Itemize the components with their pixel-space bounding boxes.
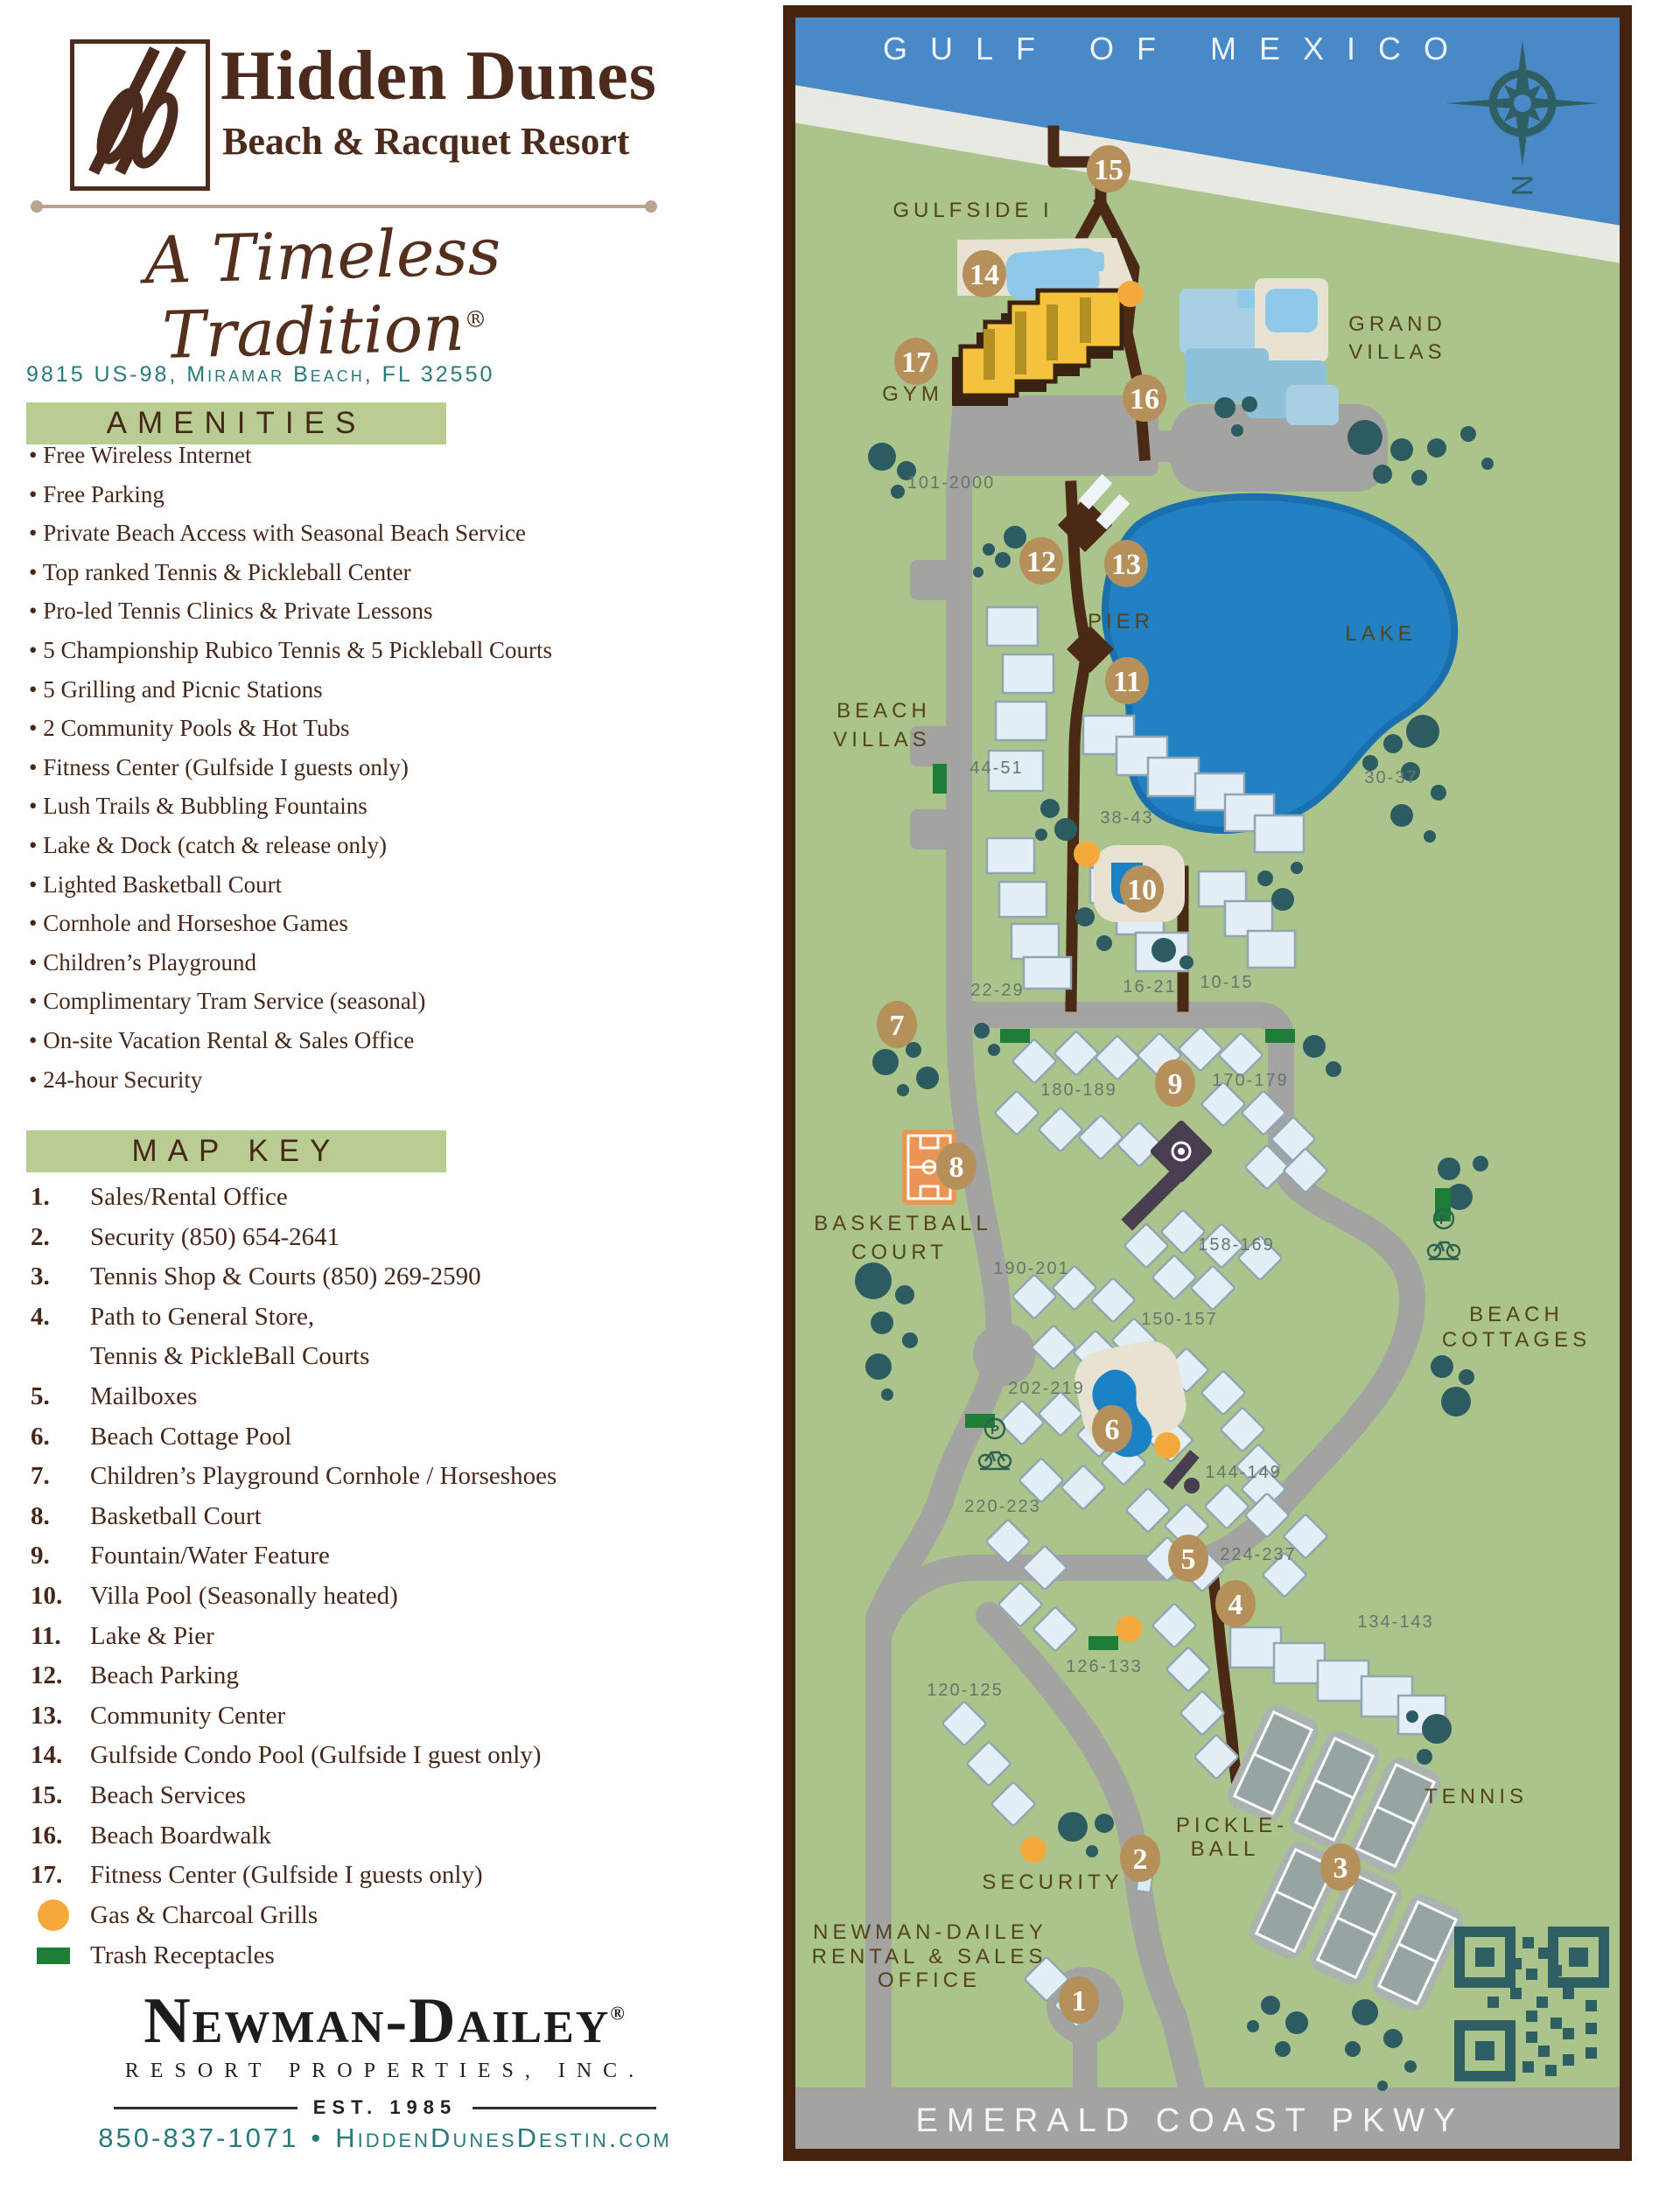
map-label-gulf-of-mexico: GULF OF MEXICO [883,31,1471,66]
amenity-item: Fitness Center (Gulfside I guests only) [29,748,552,787]
map-label-grand-villas-line2: VILLAS [1348,340,1445,364]
map-key-banner: MAP KEY [26,1130,446,1172]
est-text: EST. 1985 [313,2096,458,2119]
key-label: Mailboxes [90,1382,197,1410]
key-label: Beach Parking [90,1661,239,1689]
map-key-item-4-line2: Tennis & PickleBall Courts [31,1337,556,1377]
key-label: Basketball Court [90,1502,262,1530]
map-label-pickleball-line1: PICKLE- [1176,1814,1288,1837]
map-label-pickleball-line2: BALL [1191,1837,1260,1861]
map-key-item-4: 4.Path to General Store, [31,1297,556,1338]
map-label-range-158-169: 158-169 [1198,1235,1274,1255]
key-number: 5. [31,1377,90,1417]
legend-label: Trash Receptacles [90,1941,275,1970]
svg-text:17: 17 [901,346,931,379]
gulfside-hot-tub [1083,252,1104,271]
map-label-range-30-37: 30-37 [1364,768,1417,787]
trash-icon [37,1948,70,1964]
map-key-list: 1.Sales/Rental Office 2.Security (850) 6… [31,1178,556,1976]
key-label: Community Center [90,1702,285,1730]
map-label-range-10-15: 10-15 [1200,973,1253,992]
map-label-tennis: TENNIS [1424,1785,1528,1808]
key-label: Path to General Store, [90,1303,314,1331]
monogram-svg [74,44,197,178]
svg-text:7: 7 [890,1010,905,1042]
svg-text:10: 10 [1127,874,1157,906]
amenity-item: 24-hour Security [29,1060,552,1100]
map-label-range-224-237: 224-237 [1220,1545,1296,1564]
key-number: 2. [31,1218,90,1258]
established-line: EST. 1985 [114,2096,656,2119]
map-key-item-12: 12.Beach Parking [31,1656,556,1696]
svg-text:14: 14 [969,259,999,291]
map-key-item-10: 10.Villa Pool (Seasonally heated) [31,1577,556,1617]
amenity-item: 5 Grilling and Picnic Stations [29,670,552,710]
map-label-range-44-51: 44-51 [969,759,1023,778]
map-marker-9: 9 [1155,1060,1195,1107]
amenity-item: On-site Vacation Rental & Sales Office [29,1021,552,1060]
map-marker-8: 8 [936,1143,976,1190]
map-key-item-17: 17.Fitness Center (Gulfside I guests onl… [31,1856,556,1896]
map-key-item-1: 1.Sales/Rental Office [31,1178,556,1218]
key-label: Beach Services [90,1781,246,1809]
map-marker-13: 13 [1104,540,1148,587]
legend-label: Gas & Charcoal Grills [90,1901,318,1930]
grill-icon [1074,841,1100,867]
grill-icon [1020,1836,1046,1863]
svg-text:15: 15 [1094,154,1123,186]
trash-icon [933,764,947,794]
svg-text:3: 3 [1333,1852,1348,1885]
map-key-item-15: 15.Beach Services [31,1776,556,1816]
map-marker-14: 14 [962,250,1006,297]
key-label: Beach Cottage Pool [90,1423,291,1451]
key-number: 16. [31,1816,90,1857]
newman-dailey-logo: Newman-Dailey® [52,1984,717,2059]
amenity-item: Lush Trails & Bubbling Fountains [29,787,552,826]
map-label-basketball-line1: BASKETBALL [814,1212,991,1235]
map-label-range-202-219: 202-219 [1008,1379,1084,1398]
map-marker-1: 1 [1059,1976,1099,2024]
key-label: Gulfside Condo Pool (Gulfside I guest on… [90,1741,542,1769]
svg-text:5: 5 [1181,1543,1196,1576]
map-marker-12: 12 [1019,537,1063,584]
map-marker-17: 17 [894,338,938,385]
company-name: Newman-Dailey [143,1985,610,2057]
key-number: 7. [31,1457,90,1497]
map-key-item-5: 5.Mailboxes [31,1377,556,1417]
legend-grills: Gas & Charcoal Grills [31,1896,556,1936]
amenity-item: Lighted Basketball Court [29,865,552,905]
amenity-item: Private Beach Access with Seasonal Beach… [29,514,552,553]
key-number: 9. [31,1536,90,1577]
key-number: 10. [31,1577,90,1617]
amenity-item: Children’s Playground [29,943,552,983]
key-number: 6. [31,1417,90,1458]
resort-map-flyer: Hidden Dunes Beach & Racquet Resort A Ti… [0,0,1680,2203]
map-label-beach-villas-line2: VILLAS [833,728,930,752]
map-marker-3: 3 [1320,1843,1361,1891]
divider-rule [37,205,651,208]
key-label: Fitness Center (Gulfside I guests only) [90,1861,483,1889]
map-label-range-180-189: 180-189 [1040,1081,1116,1100]
grill-icon [1116,1616,1142,1642]
map-label-range-101-2000: 101-2000 [907,473,996,493]
amenity-item: Free Wireless Internet [29,436,552,475]
svg-text:1: 1 [1072,1985,1087,2018]
amenity-item: Pro-led Tennis Clinics & Private Lessons [29,591,552,631]
contact-line: 850-837-1071•HiddenDunesDestin.com [9,2123,761,2154]
svg-text:4: 4 [1228,1589,1243,1621]
map-label-range-120-125: 120-125 [927,1681,1003,1700]
map-label-rental-office-line1: NEWMAN-DAILEY [813,1920,1047,1944]
map-key-item-13: 13.Community Center [31,1696,556,1737]
map-marker-2: 2 [1120,1835,1160,1882]
map-label-security: SECURITY [982,1871,1123,1894]
map-label-range-220-223: 220-223 [964,1497,1040,1516]
amenity-item: Free Parking [29,475,552,514]
key-number: 4. [31,1297,90,1338]
svg-text:8: 8 [949,1151,964,1184]
map-label-grand-villas-line1: GRAND [1348,312,1446,336]
map-marker-11: 11 [1105,657,1149,704]
tagline: A Timeless Tradition® [42,212,605,377]
map-label-pier: PIER [1088,610,1154,633]
key-number: 12. [31,1656,90,1696]
key-number: 11. [31,1617,90,1657]
compass-north-letter: N [1505,175,1538,197]
phone-number: 850-837-1071 [98,2123,298,2153]
website-url: HiddenDunesDestin.com [335,2123,671,2153]
svg-text:13: 13 [1111,549,1141,581]
map-label-beach-villas-line1: BEACH [836,699,931,723]
registered-mark: ® [464,306,487,333]
map-key-item-6: 6.Beach Cottage Pool [31,1417,556,1458]
trash-icon [1265,1029,1295,1043]
map-label-beach-cottages-line1: BEACH [1469,1303,1564,1326]
map-label-range-16-21: 16-21 [1123,977,1176,997]
map-label-range-38-43: 38-43 [1100,808,1153,828]
map-key-item-9: 9.Fountain/Water Feature [31,1536,556,1577]
map-marker-4: 4 [1215,1580,1256,1627]
map-label-range-134-143: 134-143 [1357,1612,1433,1632]
map-label-beach-cottages-line2: COTTAGES [1442,1328,1591,1352]
svg-text:11: 11 [1113,666,1141,698]
map-marker-15: 15 [1087,145,1130,192]
trash-icon [1000,1029,1030,1043]
map-label-rental-office-line2: RENTAL & SALES [812,1945,1047,1969]
key-label: Security (850) 654-2641 [90,1223,339,1251]
map-label-basketball-line2: COURT [851,1241,948,1264]
map-label-range-144-149: 144-149 [1205,1463,1281,1482]
separator-dot: • [311,2123,323,2153]
map-marker-16: 16 [1123,374,1166,422]
map-label-gym: GYM [882,382,943,406]
amenity-item: 5 Championship Rubico Tennis & 5 Pickleb… [29,631,552,670]
map-label-range-190-201: 190-201 [993,1259,1069,1278]
resort-address: 9815 US-98, Miramar Beach, FL 32550 [26,362,674,388]
map-key-title: MAP KEY [132,1134,341,1169]
map-label-range-22-29: 22-29 [970,981,1024,1000]
map-marker-6: 6 [1092,1405,1132,1452]
map-label-gulfside-i: GULFSIDE I [892,199,1053,222]
key-number: 3. [31,1257,90,1297]
company-subtitle: RESORT PROPERTIES, INC. [52,2060,717,2083]
map-key-item-3: 3.Tennis Shop & Courts (850) 269-2590 [31,1257,556,1297]
key-number: 8. [31,1497,90,1537]
brand-name: Hidden Dunes [220,37,657,116]
key-number: 13. [31,1696,90,1737]
key-label: Lake & Pier [90,1622,214,1650]
svg-text:9: 9 [1168,1068,1183,1101]
map-key-item-16: 16.Beach Boardwalk [31,1816,556,1857]
key-label: Beach Boardwalk [90,1822,271,1850]
brand-subtitle: Beach & Racquet Resort [222,119,630,164]
map-label-range-150-157: 150-157 [1141,1310,1217,1329]
map-key-item-8: 8.Basketball Court [31,1497,556,1537]
grill-icon [1117,281,1144,307]
amenity-item: Cornhole and Horseshoe Games [29,904,552,943]
key-label: Sales/Rental Office [90,1183,288,1211]
map-key-item-7: 7.Children’s Playground Cornhole / Horse… [31,1457,556,1497]
registered-mark: ® [610,2002,626,2024]
key-number: 17. [31,1856,90,1896]
key-label: Children’s Playground Cornhole / Horsesh… [90,1462,556,1490]
map-marker-5: 5 [1168,1535,1208,1582]
amenity-item: Lake & Dock (catch & release only) [29,826,552,865]
legend-trash: Trash Receptacles [31,1935,556,1976]
key-label: Tennis Shop & Courts (850) 269-2590 [90,1262,481,1290]
svg-text:12: 12 [1026,546,1056,578]
map-marker-10: 10 [1120,865,1164,913]
map-label-range-126-133: 126-133 [1066,1657,1142,1676]
amenity-item: Top ranked Tennis & Pickleball Center [29,553,552,592]
grill-icon [38,1899,69,1931]
key-label: Fountain/Water Feature [90,1542,330,1570]
amenities-list: Free Wireless Internet Free Parking Priv… [29,436,552,1099]
map-label-lake: LAKE [1345,622,1416,646]
map-key-item-2: 2.Security (850) 654-2641 [31,1218,556,1258]
map-label-emerald-coast-pkwy: EMERALD COAST PKWY [916,2102,1465,2139]
map-label-rental-office-line3: OFFICE [878,1969,981,1992]
amenity-item: Complimentary Tram Service (seasonal) [29,982,552,1021]
hidden-dunes-monogram-icon [70,39,210,191]
svg-text:2: 2 [1133,1843,1148,1876]
map-marker-7: 7 [877,1001,917,1048]
key-label: Villa Pool (Seasonally heated) [90,1582,398,1610]
trash-icon [1088,1636,1118,1650]
amenity-item: 2 Community Pools & Hot Tubs [29,709,552,748]
svg-text:16: 16 [1130,383,1159,416]
key-number: 1. [31,1178,90,1218]
grill-icon [1154,1432,1180,1458]
resort-site-map: P [783,5,1632,2161]
map-key-item-11: 11.Lake & Pier [31,1617,556,1657]
map-label-range-170-179: 170-179 [1212,1071,1288,1090]
tagline-text: A Timeless Tradition [143,214,501,374]
map-key-item-14: 14.Gulfside Condo Pool (Gulfside I guest… [31,1736,556,1776]
key-number: 15. [31,1776,90,1816]
svg-text:6: 6 [1105,1414,1120,1446]
key-number: 14. [31,1736,90,1776]
